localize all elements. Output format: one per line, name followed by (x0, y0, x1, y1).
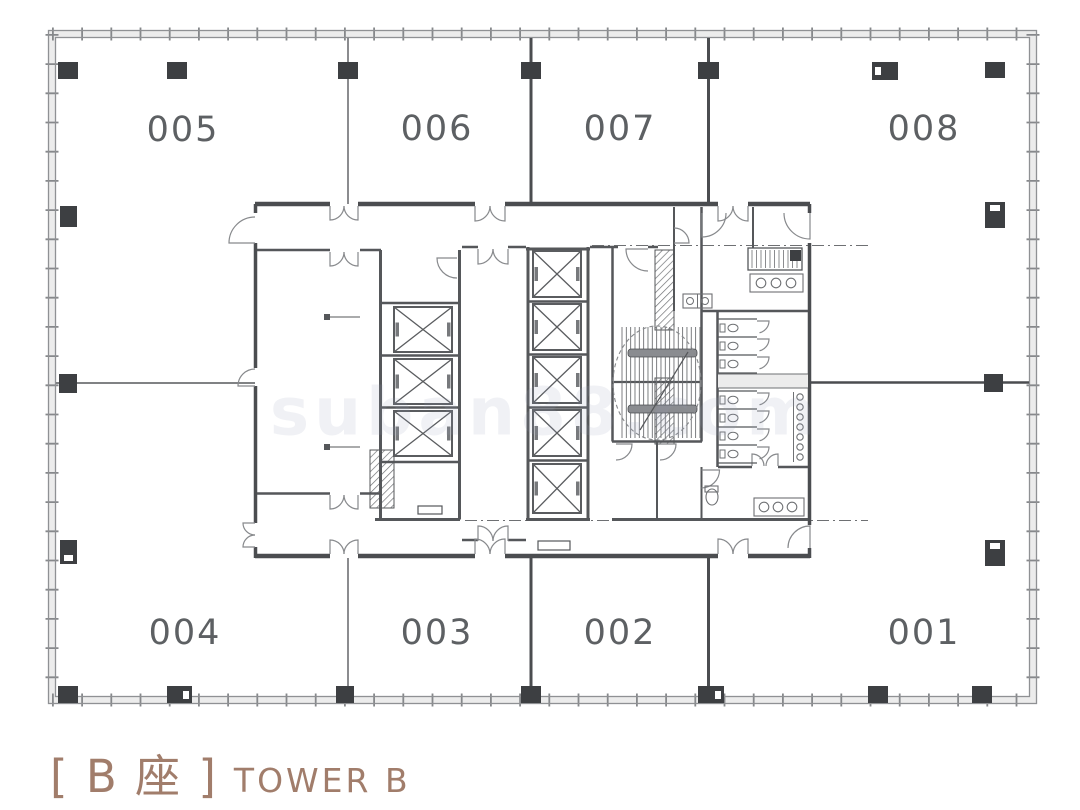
floor-plan-page: suban88.com 005 006 007 008 004 003 002 … (0, 0, 1080, 810)
tower-title-en: TOWER B (234, 761, 411, 800)
unit-label-001: 001 (888, 613, 961, 653)
unit-label-005: 005 (147, 110, 220, 150)
tower-title: [ B 座 ] TOWER B (50, 740, 411, 805)
unit-label-003: 003 (401, 613, 474, 653)
unit-label-004: 004 (149, 613, 222, 653)
tower-title-cn: [ B 座 ] (50, 740, 218, 805)
unit-label-008: 008 (888, 109, 961, 149)
unit-label-006: 006 (401, 109, 474, 149)
unit-label-002: 002 (584, 613, 657, 653)
unit-label-007: 007 (584, 109, 657, 149)
